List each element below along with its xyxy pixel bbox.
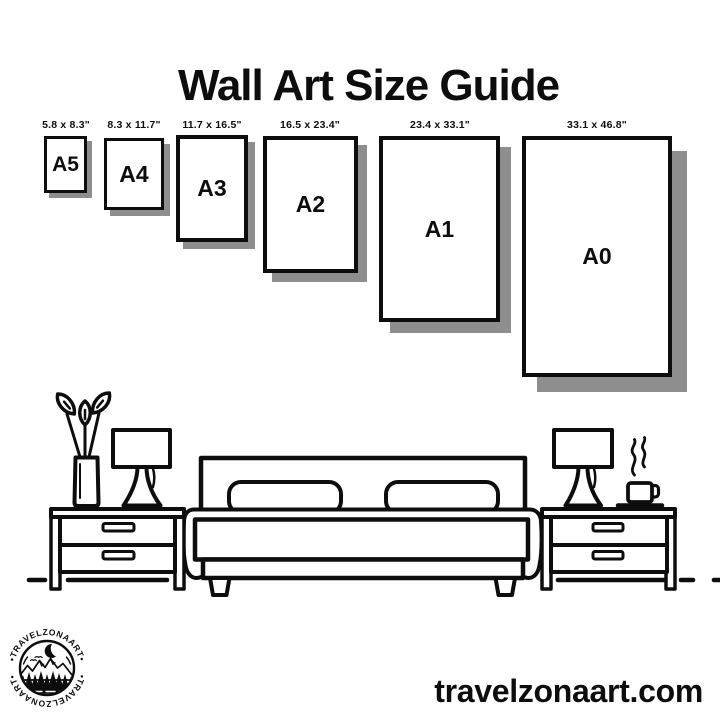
left-lamp-icon xyxy=(113,430,170,506)
size-frame-a1: A1 xyxy=(379,136,500,322)
dimension-label-a0: 33.1 x 46.8" xyxy=(527,119,667,131)
cup-body xyxy=(628,483,652,502)
dimension-label-a4: 8.3 x 11.7" xyxy=(64,119,204,131)
plant-icon xyxy=(53,389,113,506)
size-frame-a0-label: A0 xyxy=(582,243,611,270)
lamp-shade xyxy=(113,430,170,467)
size-frame-a3-label: A3 xyxy=(197,175,226,202)
size-frame-a5: A5 xyxy=(44,136,87,193)
size-frame-a2: A2 xyxy=(263,136,358,273)
dimension-label-a1: 23.4 x 33.1" xyxy=(370,119,510,131)
lamp-cord xyxy=(153,467,155,487)
size-frame-a2-label: A2 xyxy=(296,191,325,218)
vase xyxy=(75,458,99,507)
dimension-label-a5: 5.8 x 8.3" xyxy=(0,119,136,131)
bird-icon xyxy=(35,657,42,658)
bed-leg-right xyxy=(496,578,516,595)
right-lamp-icon xyxy=(554,430,612,506)
size-frame-a4-label: A4 xyxy=(119,161,148,188)
bed-base xyxy=(203,560,523,579)
website-url: travelzonaart.com xyxy=(434,673,703,710)
steam-icon xyxy=(632,440,635,476)
dimension-label-a3: 11.7 x 16.5" xyxy=(142,119,282,131)
mattress xyxy=(195,520,528,560)
size-frame-a3: A3 xyxy=(176,135,248,242)
left-nightstand xyxy=(51,509,184,589)
lamp-shade xyxy=(554,430,612,467)
steam-icon xyxy=(642,438,644,468)
nightstand-top xyxy=(542,509,675,517)
lamp-cord xyxy=(594,467,596,487)
bird-icon xyxy=(31,660,37,661)
size-frame-a5-label: A5 xyxy=(52,153,79,177)
nightstand-top xyxy=(51,509,184,517)
page-title: Wall Art Size Guide xyxy=(0,64,720,108)
dimension-label-a2: 16.5 x 23.4" xyxy=(240,119,380,131)
coffee-cup-icon xyxy=(618,438,662,506)
wall-art-size-guide-poster: Wall Art Size Guide 5.8 x 8.3" 8.3 x 11.… xyxy=(0,0,720,720)
right-nightstand xyxy=(542,509,675,589)
brand-logo-badge: •TRAVELZONAART• •TRAVELZONAART• xyxy=(8,628,86,708)
size-frame-a1-label: A1 xyxy=(425,216,454,243)
bed xyxy=(183,458,541,595)
size-frame-a4: A4 xyxy=(104,138,164,210)
bed-leg-left xyxy=(210,578,230,595)
bedroom-illustration xyxy=(0,375,720,605)
size-frame-a0: A0 xyxy=(522,136,672,377)
